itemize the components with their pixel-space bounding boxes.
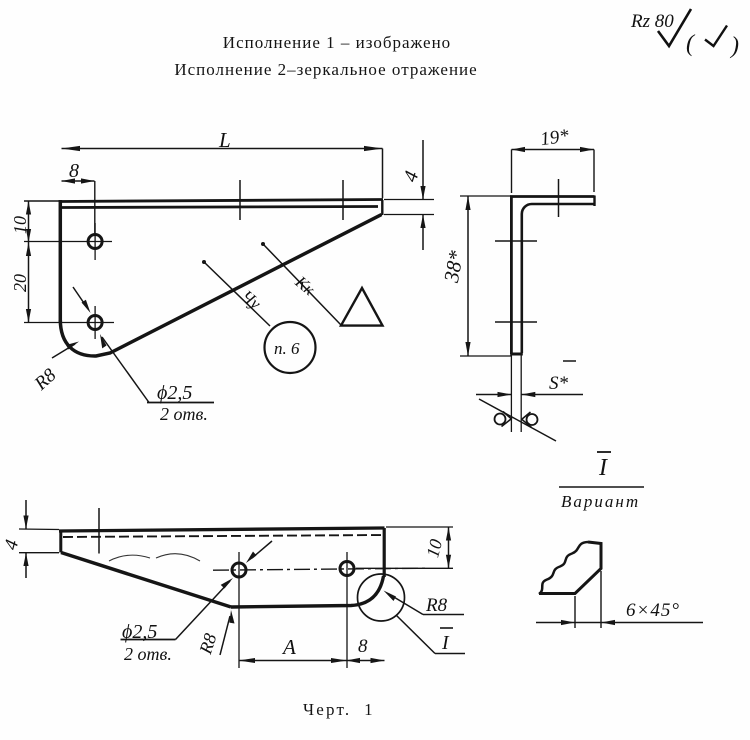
svg-text:): ) [729,33,739,59]
svg-text:S*: S* [549,373,569,394]
svg-text:R8: R8 [425,595,448,616]
svg-text:Исполнение 2–зеркальное отра: Исполнение 2–зеркальное отражение [174,60,477,79]
svg-text:п. 6: п. 6 [274,339,300,358]
svg-text:ϕ2,5: ϕ2,5 [157,382,192,404]
svg-text:Черт. 1: Черт. 1 [303,700,375,719]
svg-text:I: I [441,632,450,654]
svg-text:ϕ2,5: ϕ2,5 [122,621,157,643]
svg-text:L: L [218,128,231,152]
svg-text:Исполнение 1 – изображено: Исполнение 1 – изображено [223,33,451,52]
svg-text:8: 8 [69,160,79,182]
svg-text:6×45°: 6×45° [626,600,680,621]
svg-text:Rz 80: Rz 80 [630,11,674,32]
svg-text:19*: 19* [539,125,571,150]
svg-text:A: A [281,635,296,659]
svg-text:Вариант: Вариант [561,492,640,511]
svg-text:2 отв.: 2 отв. [160,404,208,424]
svg-text:8: 8 [358,636,368,657]
svg-text:10: 10 [10,216,30,234]
svg-text:20: 20 [10,274,30,292]
svg-text:I: I [598,455,608,481]
svg-text:2 отв.: 2 отв. [124,644,172,664]
